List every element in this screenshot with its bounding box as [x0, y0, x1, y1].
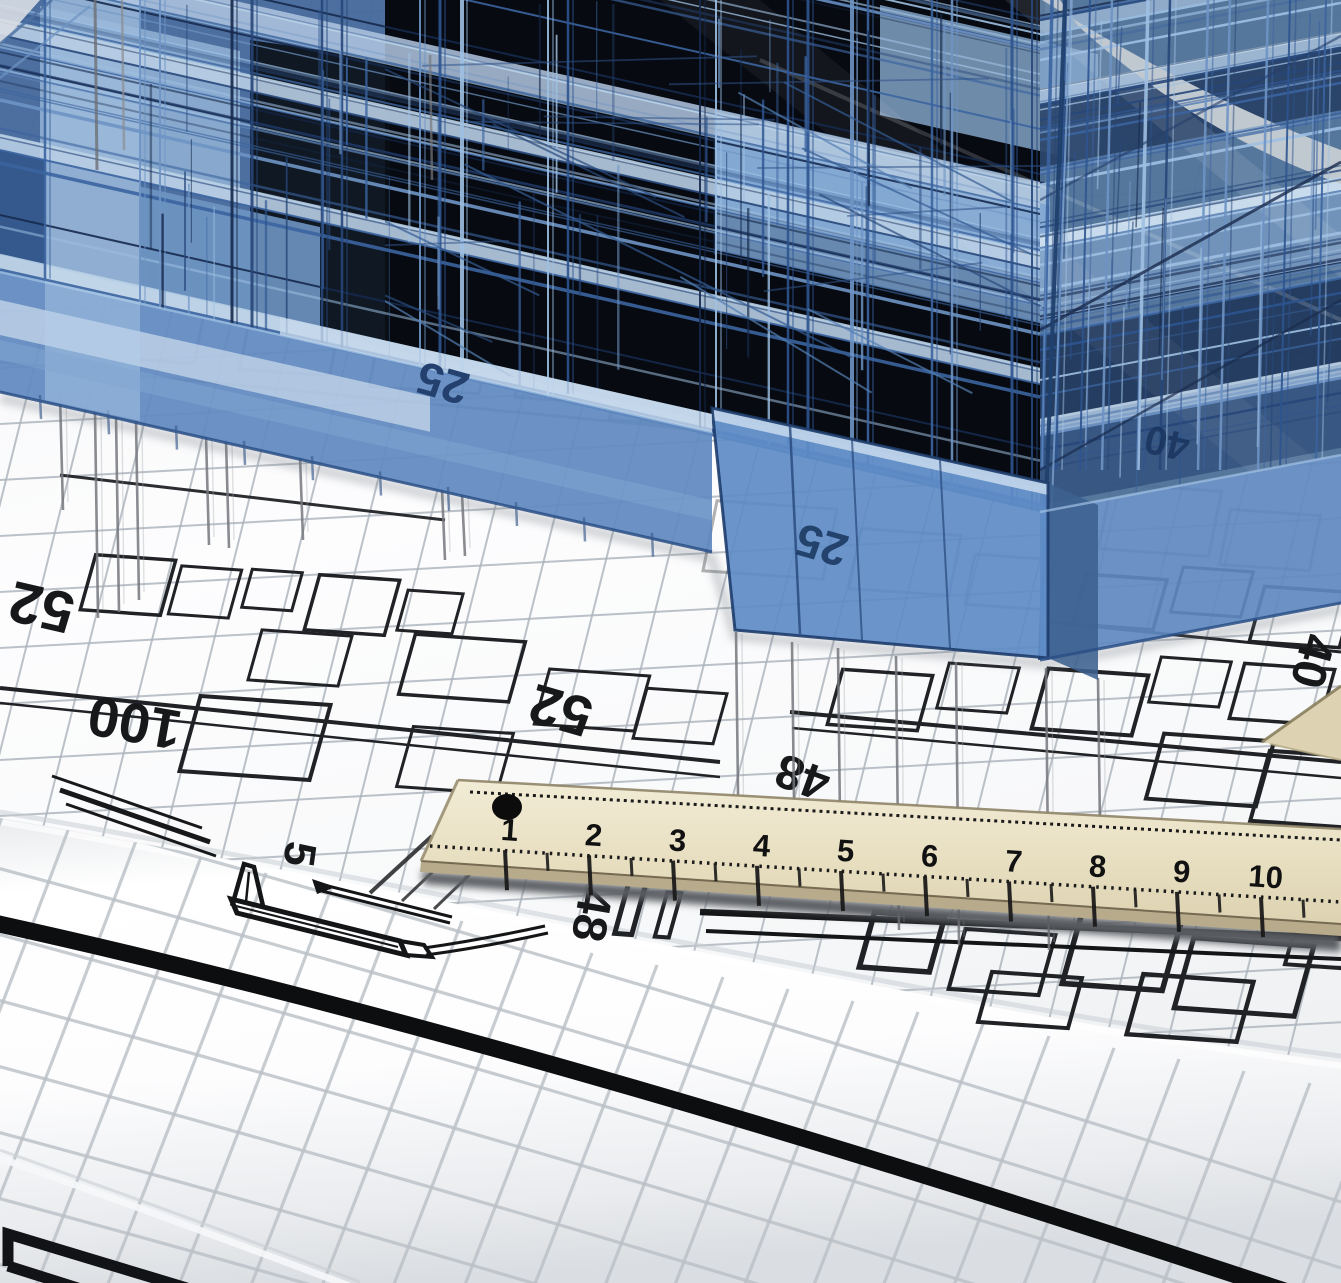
svg-text:7: 7 [1004, 843, 1024, 879]
svg-text:10: 10 [1247, 858, 1284, 895]
svg-text:4: 4 [752, 828, 772, 864]
svg-text:1: 1 [500, 812, 520, 848]
svg-text:8: 8 [1088, 848, 1108, 884]
svg-text:2: 2 [584, 817, 604, 853]
svg-text:6: 6 [920, 838, 940, 874]
svg-text:3: 3 [668, 822, 688, 858]
svg-text:5: 5 [836, 833, 856, 869]
svg-text:9: 9 [1172, 854, 1192, 890]
